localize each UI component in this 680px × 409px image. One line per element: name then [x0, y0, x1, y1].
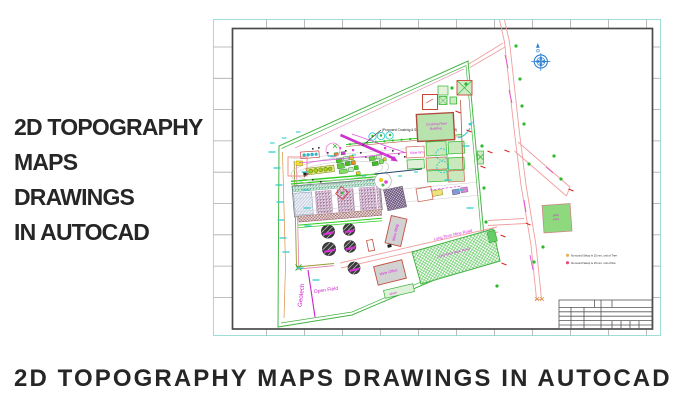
svg-text:Geotech: Geotech	[297, 283, 306, 308]
svg-text:No sound Setup is 15 mm, unit: No sound Setup is 15 mm, unit of line	[571, 261, 616, 265]
svg-text:Open Field: Open Field	[313, 286, 338, 295]
svg-text:area: area	[553, 217, 560, 221]
svg-text:No sound Setup is 15 mm, unit: No sound Setup is 15 mm, unit of Tree	[571, 253, 617, 257]
svg-text:Building: Building	[430, 126, 442, 131]
svg-text:Mine WS: Mine WS	[410, 150, 425, 155]
